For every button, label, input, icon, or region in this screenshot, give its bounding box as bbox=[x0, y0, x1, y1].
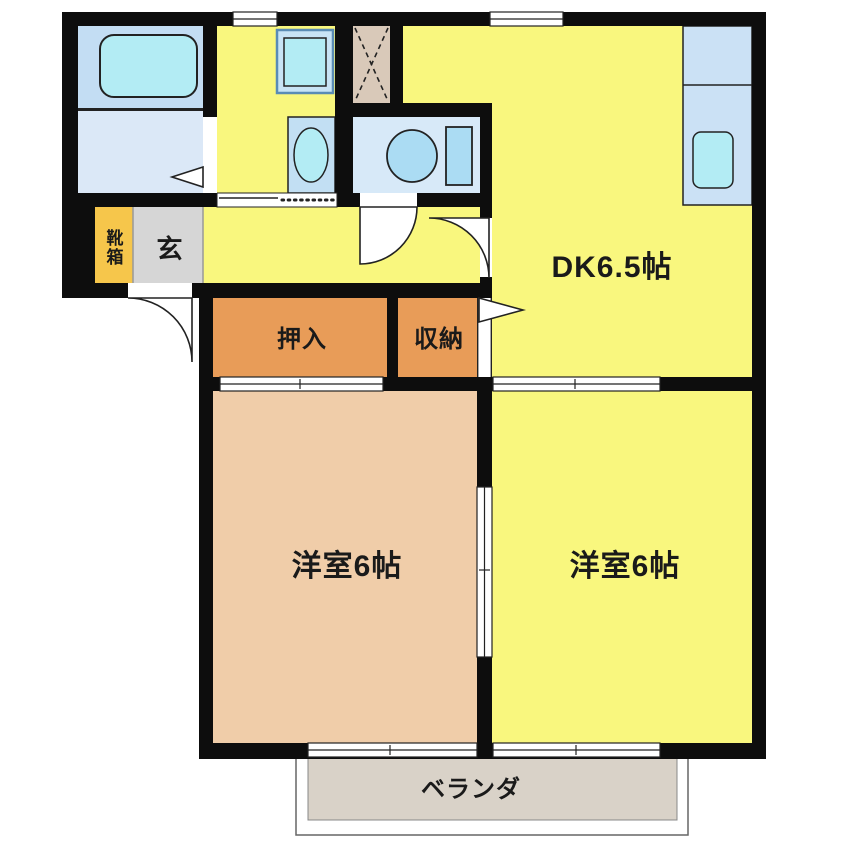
bathtub-icon bbox=[100, 35, 197, 97]
front-door-swing-arc bbox=[128, 298, 192, 362]
floor-plan-drawing bbox=[0, 0, 846, 846]
dk-label: DK6.5帖 bbox=[551, 253, 672, 283]
wall-top bbox=[62, 12, 765, 26]
kitchen-sink-icon bbox=[693, 132, 733, 188]
wall-closet-storage bbox=[387, 298, 398, 377]
closet-label: 押入 bbox=[277, 328, 327, 352]
entrance-label: 玄 bbox=[156, 236, 183, 262]
wall-left-lower bbox=[199, 283, 213, 759]
storage-label: 収納 bbox=[414, 328, 464, 352]
toilet-bowl-icon bbox=[387, 130, 437, 182]
wall-hallway-bottom bbox=[62, 283, 492, 298]
washing-machine-icon bbox=[284, 38, 326, 86]
floor-plan: DK6.5帖 洋室6帖 洋室6帖 押入 収納 玄 靴箱 ベランダ bbox=[0, 0, 846, 846]
bathroom-divider-line bbox=[78, 108, 203, 111]
washbasin-bowl-icon bbox=[294, 128, 328, 182]
wall-entry-left bbox=[62, 193, 95, 298]
toilet-tank-icon bbox=[446, 127, 472, 185]
toilet-door-opening bbox=[360, 193, 417, 207]
wall-toilet-top bbox=[335, 103, 492, 117]
bathroom-door-opening bbox=[203, 117, 217, 193]
front-door-opening bbox=[128, 283, 192, 298]
bedroom-right-label: 洋室6帖 bbox=[570, 552, 681, 582]
shoebox-label: 靴箱 bbox=[105, 229, 122, 267]
bedroom-left-label: 洋室6帖 bbox=[292, 552, 403, 582]
wall-bottom bbox=[199, 743, 766, 759]
veranda-label: ベランダ bbox=[421, 778, 521, 802]
wall-hatch-right bbox=[390, 12, 403, 117]
